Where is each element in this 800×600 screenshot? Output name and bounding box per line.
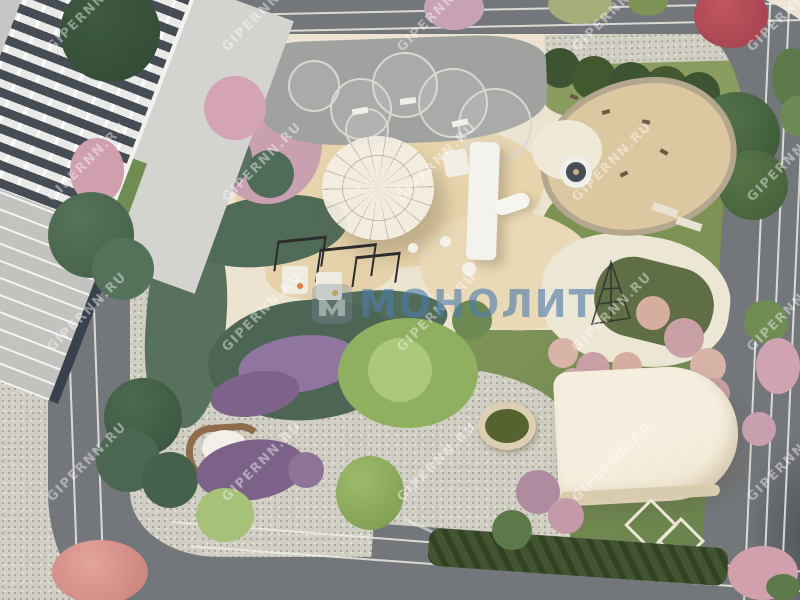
courtyard-aerial-render: GIPERNN.RUGIPERNN.RUGIPERNN.RUGIPERNN.RU… [0,0,800,600]
watermark-text: GIPERNN.RU [744,269,800,355]
watermark-text: GIPERNN.RU [44,419,130,505]
watermark-text: GIPERNN.RU [44,269,130,355]
watermark-text: GIPERNN.RU [44,119,130,205]
watermark-text: GIPERNN.RU [569,0,655,55]
watermark-text: GIPERNN.RU [219,119,305,205]
monolit-mark-icon [312,284,352,324]
watermark-text: GIPERNN.RU [394,0,480,55]
watermark-text: GIPERNN.RU [744,119,800,205]
watermark-text: GIPERNN.RU [394,119,480,205]
developer-logo: МОНОЛИТ [312,282,597,326]
developer-logo-text: МОНОЛИТ [359,282,597,326]
watermark-text: GIPERNN.RU [744,419,800,505]
watermark-text: GIPERNN.RU [394,419,480,505]
watermark-text: GIPERNN.RU [219,419,305,505]
watermark-text: GIPERNN.RU [569,419,655,505]
watermark-text: GIPERNN.RU [219,0,305,55]
watermark-text: GIPERNN.RU [744,0,800,55]
watermark-text: GIPERNN.RU [219,269,305,355]
watermark-text: GIPERNN.RU [44,0,130,55]
watermark-text: GIPERNN.RU [569,119,655,205]
